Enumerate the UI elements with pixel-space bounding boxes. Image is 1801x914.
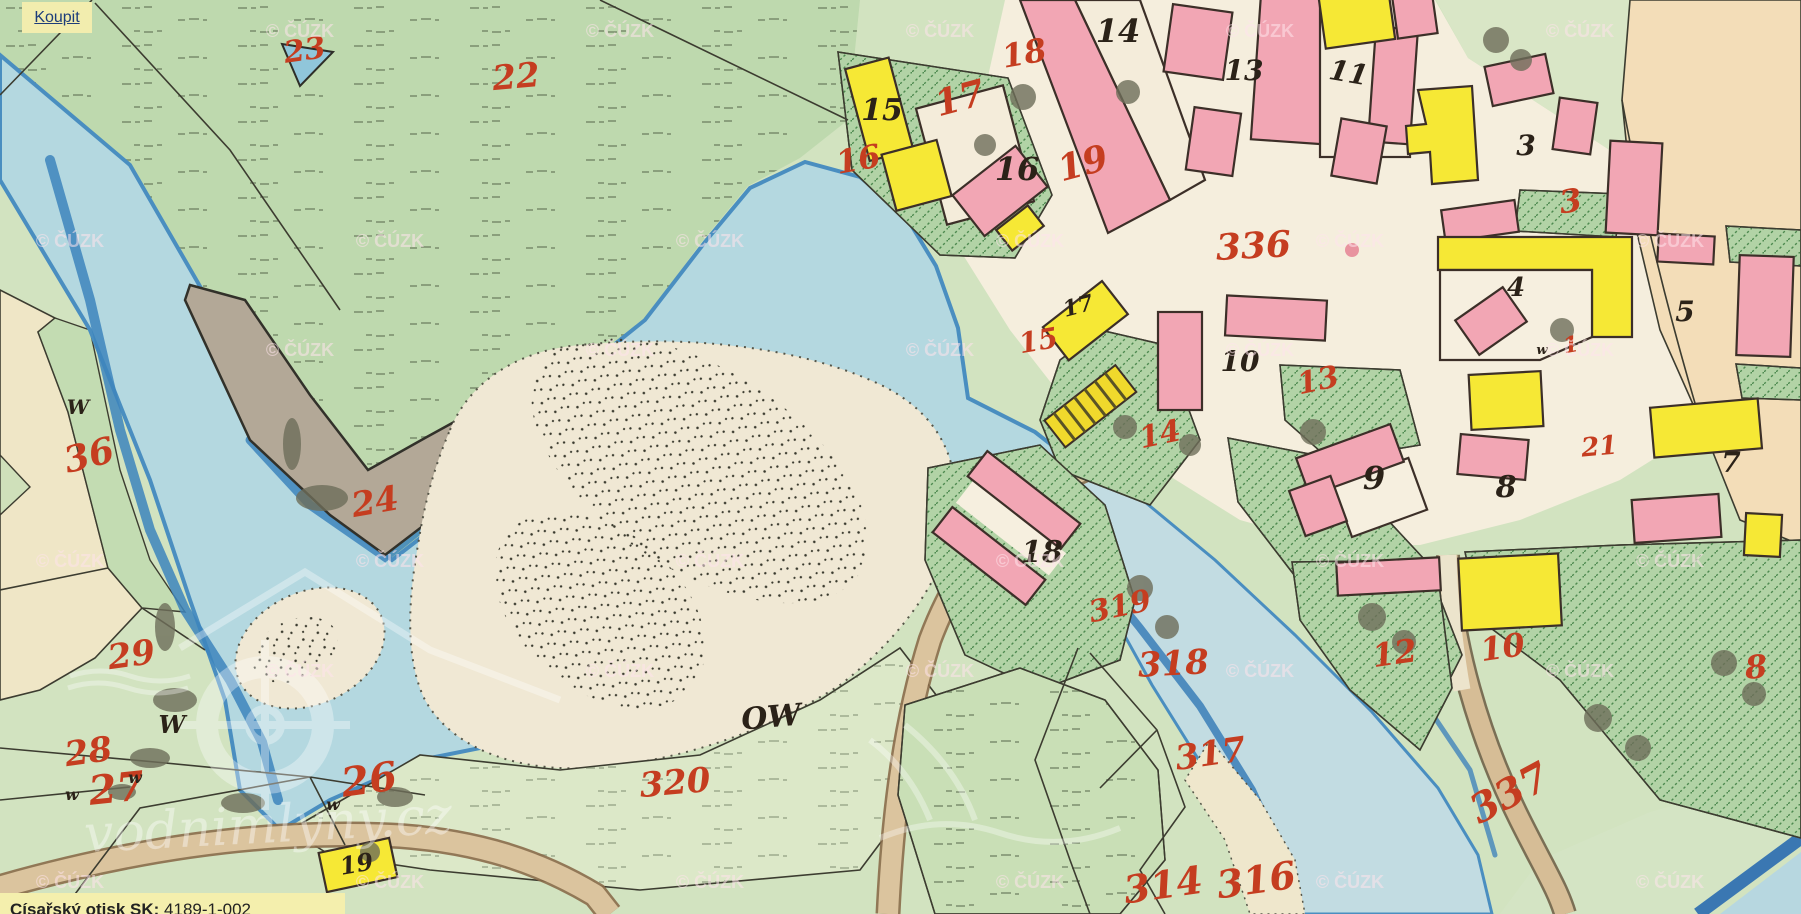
red-parcel-number: 336 (1215, 223, 1292, 269)
red-parcel-number: 8 (1742, 647, 1768, 687)
map-sheet-info-bar: Císařský otisk SK: 4189-1-002 (0, 893, 345, 914)
red-parcel-number: 15 (1016, 321, 1060, 360)
buy-box: Koupit (22, 2, 92, 33)
cuzk-watermark: © ČÚZK (356, 871, 424, 892)
cuzk-watermark: © ČÚZK (36, 871, 104, 892)
cuzk-watermark: © ČÚZK (586, 660, 654, 681)
red-parcel-number: 12 (1370, 631, 1419, 675)
building-yellow-8 (1458, 553, 1562, 630)
black-house-number: 3 (1516, 129, 1535, 162)
cuzk-watermark: © ČÚZK (1546, 339, 1614, 360)
black-house-number: 16 (995, 150, 1040, 188)
cuzk-watermark: © ČÚZK (906, 660, 974, 681)
cuzk-watermark: © ČÚZK (676, 871, 744, 892)
black-house-number: 8 (1495, 470, 1517, 505)
cuzk-watermark: © ČÚZK (36, 230, 104, 251)
cuzk-watermark: © ČÚZK (356, 550, 424, 571)
map-viewer[interactable]: vodnimlyny.cz 23223624292827261617181915… (0, 0, 1801, 914)
cuzk-watermark: © ČÚZK (1636, 871, 1704, 892)
letter-annotation: OW (740, 697, 806, 737)
cuzk-watermark: © ČÚZK (266, 339, 334, 360)
buy-link[interactable]: Koupit (34, 9, 79, 27)
cadastral-map-canvas[interactable]: vodnimlyny.cz 23223624292827261617181915… (0, 0, 1801, 914)
sheet-number: 4189-1-002 (164, 900, 251, 914)
cuzk-watermark: © ČÚZK (1226, 20, 1294, 41)
cuzk-watermark: © ČÚZK (1546, 20, 1614, 41)
red-parcel-number: 22 (490, 55, 542, 99)
cuzk-watermark: © ČÚZK (1226, 339, 1294, 360)
cuzk-watermark: © ČÚZK (1316, 871, 1384, 892)
cuzk-watermark: © ČÚZK (676, 550, 744, 571)
cuzk-watermark: © ČÚZK (1546, 660, 1614, 681)
black-house-number: 5 (1675, 295, 1694, 328)
red-parcel-number: 21 (1579, 431, 1619, 464)
red-parcel-number: 26 (337, 752, 400, 806)
cuzk-watermark: © ČÚZK (1316, 550, 1384, 571)
cuzk-watermark: © ČÚZK (906, 20, 974, 41)
letter-annotation: w (128, 768, 143, 787)
letter-annotation: W (67, 395, 92, 419)
cuzk-watermark: © ČÚZK (1226, 660, 1294, 681)
cuzk-watermark: © ČÚZK (36, 550, 104, 571)
cuzk-watermark: © ČÚZK (1316, 230, 1384, 251)
cuzk-watermark: © ČÚZK (356, 230, 424, 251)
cuzk-watermark: © ČÚZK (266, 20, 334, 41)
cuzk-watermark: © ČÚZK (906, 339, 974, 360)
red-parcel-number: 18 (999, 31, 1049, 76)
black-house-number: 9 (1363, 459, 1385, 497)
cuzk-watermark: © ČÚZK (996, 871, 1064, 892)
cuzk-watermark: © ČÚZK (996, 230, 1064, 251)
black-house-number: 14 (1096, 12, 1141, 50)
sheet-type-label: Císařský otisk SK: (10, 900, 159, 914)
red-parcel-number: 24 (347, 478, 402, 526)
red-parcel-number: 318 (1137, 642, 1210, 686)
black-house-number: 11 (1327, 53, 1371, 92)
cuzk-watermark: © ČÚZK (266, 660, 334, 681)
letter-annotation: w (326, 795, 341, 814)
black-house-number: 13 (1225, 54, 1264, 87)
cuzk-watermark: © ČÚZK (586, 339, 654, 360)
letter-annotation: W (159, 710, 188, 739)
red-parcel-number: 320 (638, 760, 713, 806)
letter-annotation: w (65, 785, 80, 804)
red-parcel-number: 10 (1478, 625, 1527, 669)
black-house-number: 7 (1721, 446, 1741, 479)
red-parcel-number: 29 (104, 632, 157, 678)
cuzk-watermark: © ČÚZK (996, 550, 1064, 571)
cuzk-watermark: © ČÚZK (676, 230, 744, 251)
black-house-number: 15 (861, 93, 903, 128)
cuzk-watermark: © ČÚZK (1636, 550, 1704, 571)
red-parcel-number: 16 (833, 137, 883, 182)
cuzk-watermark: © ČÚZK (1636, 230, 1704, 251)
black-house-number: 4 (1507, 273, 1525, 303)
cuzk-watermark: © ČÚZK (586, 20, 654, 41)
